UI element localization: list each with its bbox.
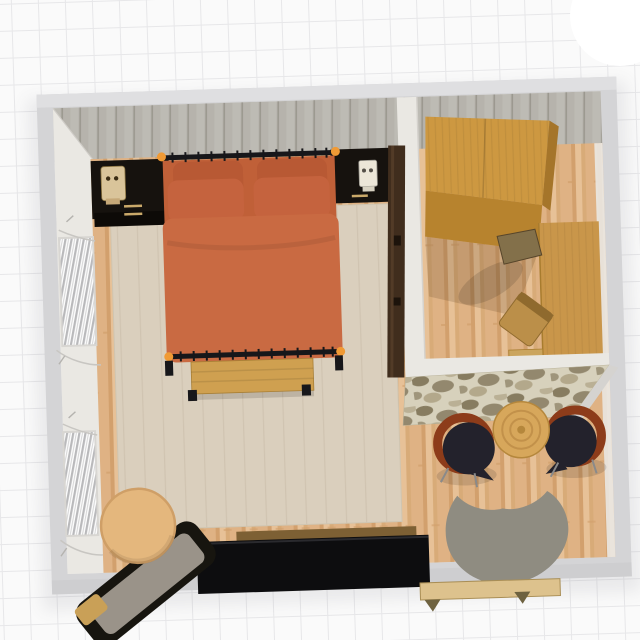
bed-leg: [165, 361, 173, 376]
nightstand-right[interactable]: [330, 148, 396, 204]
duvet: [162, 213, 342, 362]
entry-door-exterior[interactable]: [420, 579, 561, 612]
door-hinge-wedge: [514, 592, 530, 604]
round-side-table[interactable]: [492, 401, 550, 459]
window-glass-lower: [63, 431, 98, 536]
floorplan-canvas: [0, 0, 640, 640]
double-bed[interactable]: [157, 147, 347, 376]
pillow-front-left: [167, 178, 244, 222]
foot-of-bed-bench[interactable]: [187, 358, 314, 401]
nightstand-left[interactable]: [91, 159, 171, 227]
bench-leg: [188, 390, 197, 401]
tub-armchair-right[interactable]: [544, 409, 603, 477]
table-lamp-left[interactable]: [101, 166, 126, 205]
door-handle: [394, 236, 401, 246]
bed-leg: [335, 355, 343, 370]
bench-leg: [302, 384, 311, 395]
floorplan-scene: [0, 0, 640, 640]
round-pouf-ottoman[interactable]: [100, 488, 176, 564]
window-glass-upper: [59, 237, 96, 346]
sliding-door-panel: [387, 145, 405, 377]
door-handle: [394, 298, 401, 306]
pillow-front-right: [253, 176, 330, 220]
door-hinge-wedge: [425, 599, 441, 611]
dark-wood-sliding-door[interactable]: [387, 145, 405, 377]
drawer-handle: [352, 194, 368, 197]
bench-top: [191, 358, 314, 394]
